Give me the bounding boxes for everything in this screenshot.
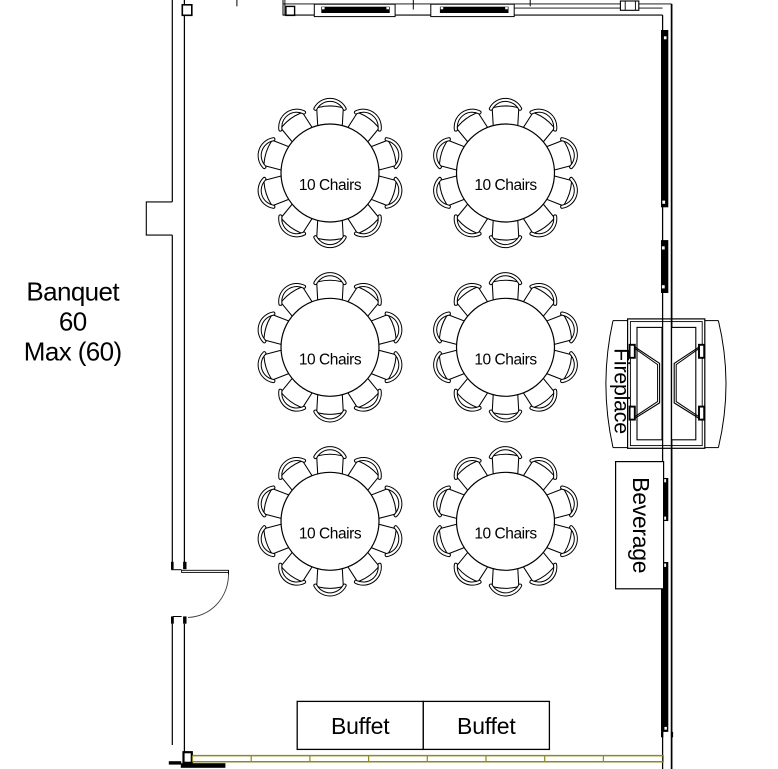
svg-text:Buffet: Buffet — [331, 713, 390, 739]
svg-text:Beverage: Beverage — [628, 477, 654, 573]
svg-text:Fireplace: Fireplace — [609, 348, 633, 434]
svg-text:60: 60 — [59, 307, 87, 337]
svg-text:Buffet: Buffet — [457, 713, 516, 739]
svg-text:Banquet: Banquet — [26, 276, 120, 306]
svg-text:Max (60): Max (60) — [24, 337, 122, 367]
